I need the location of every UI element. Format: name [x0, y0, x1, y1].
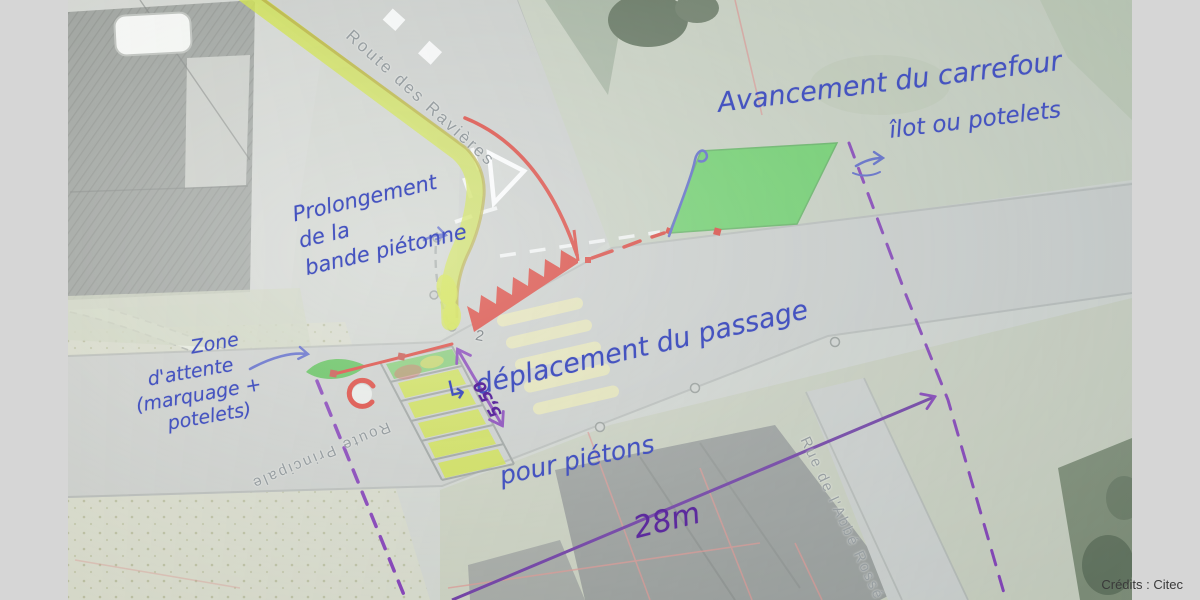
- right-letterbox-bar: [1132, 0, 1200, 600]
- credits-text: Crédits : Citec: [1101, 577, 1183, 592]
- left-letterbox-bar: [0, 0, 68, 600]
- screenshot-root: Route des Ravières Route Principale Rue …: [0, 0, 1200, 600]
- plan-graphics: [68, 0, 1132, 600]
- annotated-aerial-plan: Route des Ravières Route Principale Rue …: [68, 0, 1132, 600]
